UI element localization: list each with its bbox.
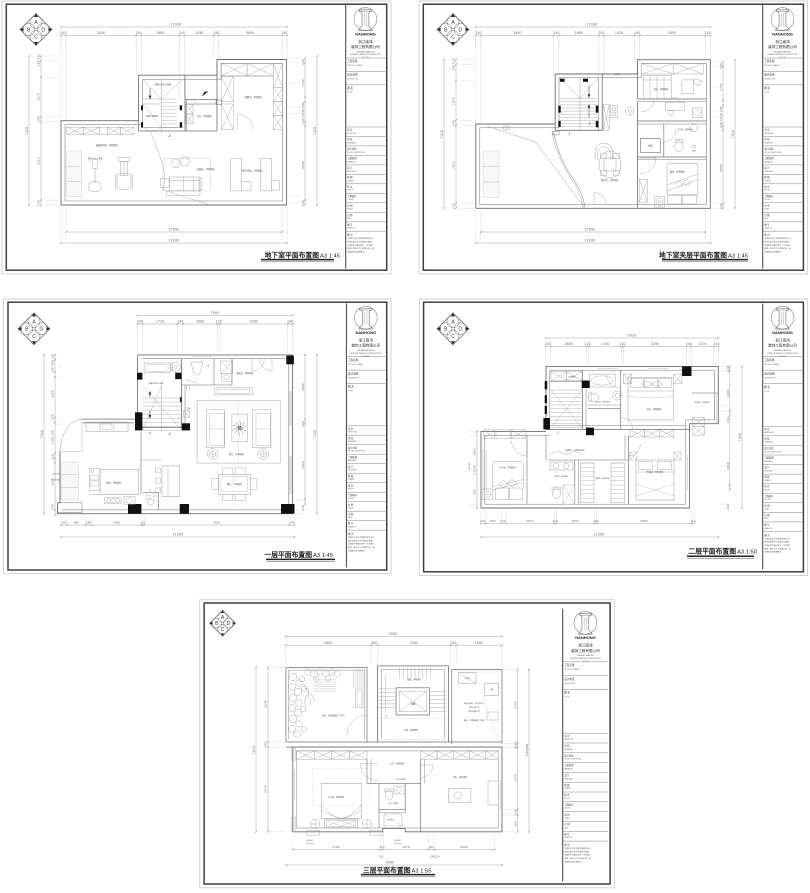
svg-text:240: 240 xyxy=(51,414,55,420)
svg-text:女儿房，特种地区: 女儿房，特种地区 xyxy=(499,466,516,470)
svg-text:240: 240 xyxy=(726,504,730,510)
svg-text:SCALE: SCALE xyxy=(348,507,354,510)
svg-text:露台可调节，洗手间可以: 露台可调节，洗手间可以 xyxy=(464,701,484,705)
svg-text:DESIGNER: DESIGNER xyxy=(348,470,358,472)
svg-text:工图监理: 工图监理 xyxy=(348,455,358,459)
svg-text:5630: 5630 xyxy=(719,164,723,172)
svg-text:9080: 9080 xyxy=(386,861,395,865)
svg-text:设计电话: 设计电话 xyxy=(347,73,358,77)
svg-text:审 定: 审 定 xyxy=(764,128,770,132)
svg-text:DESIGNER: DESIGNER xyxy=(564,778,574,780)
svg-text:3670: 3670 xyxy=(264,785,268,793)
svg-text:240: 240 xyxy=(429,845,435,849)
svg-text:DATE: DATE xyxy=(348,516,353,519)
svg-text:备 注: 备 注 xyxy=(564,843,570,847)
svg-text:校 对: 校 对 xyxy=(348,483,354,487)
svg-text:下: 下 xyxy=(148,432,151,436)
svg-text:SCALE: SCALE xyxy=(764,508,770,511)
svg-text:B: B xyxy=(27,27,31,33)
svg-text:日 期: 日 期 xyxy=(764,213,770,217)
svg-text:A3 1:50: A3 1:50 xyxy=(737,550,757,556)
svg-text:240: 240 xyxy=(452,120,456,126)
svg-text:日 期: 日 期 xyxy=(764,513,770,517)
svg-text:DRAWN: DRAWN xyxy=(764,179,771,182)
svg-text:2430: 2430 xyxy=(113,521,121,525)
svg-text:工程名称: 工程名称 xyxy=(348,358,359,362)
svg-text:450: 450 xyxy=(264,742,268,748)
svg-text:EXAMINED: EXAMINED xyxy=(348,440,358,443)
svg-text:EXAMINED: EXAMINED xyxy=(764,141,774,144)
svg-text:JOB NO.: JOB NO. xyxy=(764,499,771,501)
svg-text:JOB NO.: JOB NO. xyxy=(347,199,354,201)
svg-text:D: D xyxy=(458,327,462,333)
svg-text:图 名: 图 名 xyxy=(764,86,770,90)
svg-text:PROOF: PROOF xyxy=(348,489,354,491)
svg-text:DRAW NO.: DRAW NO. xyxy=(348,526,357,529)
svg-text:TITLE: TITLE xyxy=(764,92,770,94)
svg-text:240: 240 xyxy=(137,320,143,324)
svg-text:240: 240 xyxy=(136,31,142,35)
svg-text:PROOF: PROOF xyxy=(764,190,770,192)
svg-text:240: 240 xyxy=(686,342,692,346)
svg-text:工图监理: 工图监理 xyxy=(347,156,357,160)
svg-text:DESIGN TEL: DESIGN TEL xyxy=(764,377,775,379)
svg-text:240: 240 xyxy=(719,63,723,69)
svg-text:设计电话: 设计电话 xyxy=(764,371,775,375)
svg-text:过厅，特种地区: 过厅，特种地区 xyxy=(197,114,213,118)
svg-text:240: 240 xyxy=(452,203,456,209)
svg-text:110: 110 xyxy=(690,519,696,523)
svg-text:NANHONG: NANHONG xyxy=(575,635,596,640)
svg-text:浙江南鸿: 浙江南鸿 xyxy=(775,39,790,44)
svg-text:7410: 7410 xyxy=(440,130,444,139)
svg-text:设 计: 设 计 xyxy=(564,773,570,777)
svg-text:DESIGN TEL: DESIGN TEL xyxy=(347,79,358,81)
svg-text:240: 240 xyxy=(475,31,481,35)
svg-text:备 注: 备 注 xyxy=(764,533,770,537)
svg-text:装饰工程有限公司: 装饰工程有限公司 xyxy=(351,343,380,348)
svg-text:客厅，特种地区: 客厅，特种地区 xyxy=(229,452,245,456)
svg-text:PROOF: PROOF xyxy=(347,190,353,192)
svg-text:图 号: 图 号 xyxy=(348,521,354,525)
svg-text:审 核: 审 核 xyxy=(564,744,570,748)
svg-text:D: D xyxy=(458,27,462,33)
svg-text:下: 下 xyxy=(568,132,571,136)
svg-text:比 例: 比 例 xyxy=(348,502,354,506)
svg-text:7410: 7410 xyxy=(25,127,29,136)
svg-text:三层平面布置图: 三层平面布置图 xyxy=(363,865,411,874)
svg-text:工图监理: 工图监理 xyxy=(564,763,574,767)
svg-text:DRAWN: DRAWN xyxy=(564,787,571,790)
svg-text:C: C xyxy=(34,35,38,41)
svg-text:240: 240 xyxy=(213,31,219,35)
svg-text:JOB NO.: JOB NO. xyxy=(348,498,355,500)
svg-text:厨房，特种地区: 厨房，特种地区 xyxy=(106,481,122,485)
svg-text:ZHEJIANG NANHONG: ZHEJIANG NANHONG xyxy=(357,50,375,53)
svg-text:120: 120 xyxy=(379,845,385,849)
svg-text:审 核: 审 核 xyxy=(764,436,770,440)
svg-text:比 例: 比 例 xyxy=(564,812,570,816)
svg-text:AT RHD: AT RHD xyxy=(307,839,314,842)
svg-text:DESIGNER: DESIGNER xyxy=(347,171,357,173)
svg-text:11030: 11030 xyxy=(169,239,180,243)
svg-text:电梯: 电梯 xyxy=(411,702,416,706)
svg-text:11030: 11030 xyxy=(170,23,181,27)
svg-text:可彩光线下打: 可彩光线下打 xyxy=(469,705,480,709)
svg-text:240: 240 xyxy=(179,31,185,35)
svg-text:INTERIOR DESIGN & CONSTRUCTION: INTERIOR DESIGN & CONSTRUCTION xyxy=(350,353,381,355)
svg-text:1880: 1880 xyxy=(156,31,164,35)
svg-text:3150: 3150 xyxy=(410,641,418,645)
svg-text:3910: 3910 xyxy=(37,157,41,165)
svg-text:器械健身区，特种地区: 器械健身区，特种地区 xyxy=(96,143,119,147)
svg-text:7210: 7210 xyxy=(252,746,256,755)
svg-text:楼梯大样见大样图: 楼梯大样见大样图 xyxy=(149,381,164,385)
svg-text:3430: 3430 xyxy=(97,31,105,35)
svg-text:储物间，特种地区: 储物间，特种地区 xyxy=(245,95,263,99)
svg-text:装饰工程有限公司: 装饰工程有限公司 xyxy=(768,343,797,348)
svg-text:240: 240 xyxy=(301,200,305,206)
svg-text:ZHEJIANG NANHONG: ZHEJIANG NANHONG xyxy=(774,349,792,352)
svg-text:地下室夹层平面布置图: 地下室夹层平面布置图 xyxy=(659,250,727,259)
svg-text:主卧，特种地区: 主卧，特种地区 xyxy=(646,407,662,411)
svg-text:备 注: 备 注 xyxy=(764,233,770,237)
svg-text:1970: 1970 xyxy=(402,845,410,849)
svg-text:INTERIOR DESIGN & CONSTRUCTION: INTERIOR DESIGN & CONSTRUCTION xyxy=(350,54,381,56)
svg-text:餐厅，特种地区: 餐厅，特种地区 xyxy=(227,482,243,486)
svg-text:900: 900 xyxy=(74,521,80,525)
svg-text:120: 120 xyxy=(140,521,146,525)
svg-text:洗手台: 洗手台 xyxy=(186,407,191,410)
svg-text:设计总监: 设计总监 xyxy=(348,445,358,449)
svg-text:日 期: 日 期 xyxy=(564,822,570,826)
svg-text:INTERIOR DESIGN & CONSTRUCTION: INTERIOR DESIGN & CONSTRUCTION xyxy=(570,658,601,660)
svg-text:1430: 1430 xyxy=(195,31,203,35)
svg-text:120: 120 xyxy=(593,519,599,523)
svg-text:JOB NO.: JOB NO. xyxy=(764,199,771,201)
svg-text:设 计: 设 计 xyxy=(764,166,770,170)
svg-text:240: 240 xyxy=(705,31,711,35)
svg-text:设备: 设备 xyxy=(490,688,494,691)
svg-text:240: 240 xyxy=(60,31,66,35)
svg-text:浙江南鸿: 浙江南鸿 xyxy=(359,338,374,343)
svg-text:DRAWN: DRAWN xyxy=(764,479,771,482)
svg-text:DRAW NO.: DRAW NO. xyxy=(347,227,356,230)
svg-text:C: C xyxy=(451,334,455,340)
svg-text:DESIGNER: DESIGNER xyxy=(764,171,774,173)
svg-text:240: 240 xyxy=(37,200,41,206)
svg-text:图 名: 图 名 xyxy=(564,691,570,695)
svg-text:装饰工程有限公司: 装饰工程有限公司 xyxy=(351,44,380,49)
svg-text:NANHONG: NANHONG xyxy=(355,31,376,36)
svg-text:装饰工程有限公司: 装饰工程有限公司 xyxy=(768,44,797,49)
svg-text:淋浴房: 淋浴房 xyxy=(464,677,469,680)
svg-text:E2 C19400: E2 C19400 xyxy=(52,479,61,481)
svg-text:JOB NO.: JOB NO. xyxy=(564,808,571,810)
svg-text:1700: 1700 xyxy=(601,342,609,346)
svg-text:DATE: DATE xyxy=(764,517,769,520)
svg-text:PROJECT NAME: PROJECT NAME xyxy=(764,64,780,67)
svg-text:设计总监: 设计总监 xyxy=(564,753,574,757)
svg-text:AT +(m)d: AT +(m)d xyxy=(395,842,402,845)
svg-text:240 1040 200: 240 1040 200 xyxy=(301,102,305,123)
svg-text:MANAGER: MANAGER xyxy=(764,160,773,163)
svg-text:11290: 11290 xyxy=(173,533,184,537)
svg-text:二层平面布置图: 二层平面布置图 xyxy=(688,547,736,556)
svg-text:SCALE: SCALE xyxy=(764,208,770,211)
svg-text:4980: 4980 xyxy=(640,519,648,523)
svg-text:1460 240: 1460 240 xyxy=(51,430,55,444)
svg-text:120: 120 xyxy=(585,342,591,346)
svg-text:书房，地板铺装: 书房，地板铺装 xyxy=(453,775,468,779)
svg-text:可彩光照明下打: 可彩光照明下打 xyxy=(468,709,481,713)
svg-text:楼梯下储物间: 楼梯下储物间 xyxy=(146,114,158,118)
svg-text:D: D xyxy=(227,621,231,627)
svg-text:NANHONG: NANHONG xyxy=(772,330,793,335)
svg-text:设计总监: 设计总监 xyxy=(347,147,357,151)
svg-text:D: D xyxy=(41,27,45,33)
svg-text:设 计: 设 计 xyxy=(764,465,770,469)
svg-text:DATE: DATE xyxy=(764,217,769,220)
svg-text:7440: 7440 xyxy=(738,433,742,442)
svg-text:EXAMINED: EXAMINED xyxy=(564,748,574,751)
svg-text:APPROVED: APPROVED xyxy=(347,132,357,135)
svg-text:图 名: 图 名 xyxy=(348,385,354,389)
svg-text:C: C xyxy=(221,627,225,633)
svg-text:830: 830 xyxy=(490,519,496,523)
svg-text:1980: 1980 xyxy=(475,641,483,645)
svg-text:PROJECT APPROVED: PROJECT APPROVED xyxy=(764,450,782,453)
svg-text:比 例: 比 例 xyxy=(764,203,770,207)
svg-text:上: 上 xyxy=(588,120,591,125)
svg-text:APPROVED: APPROVED xyxy=(764,431,774,434)
svg-text:240: 240 xyxy=(545,342,551,346)
svg-text:DATE: DATE xyxy=(347,217,352,220)
svg-text:图 号: 图 号 xyxy=(764,523,770,527)
svg-text:560: 560 xyxy=(514,821,518,827)
svg-text:11030: 11030 xyxy=(586,23,597,27)
svg-text:INTERIOR DESIGN & CONSTRUCTION: INTERIOR DESIGN & CONSTRUCTION xyxy=(767,353,798,355)
svg-text:3910: 3910 xyxy=(452,161,456,169)
svg-text:ZHEJIANG NANHONG: ZHEJIANG NANHONG xyxy=(774,50,792,53)
svg-text:280: 280 xyxy=(86,521,92,525)
svg-text:240 810: 240 810 xyxy=(452,58,456,71)
svg-text:DESIGN TEL: DESIGN TEL xyxy=(348,377,359,379)
svg-text:下: 下 xyxy=(385,716,388,719)
svg-text:AT RHD: AT RHD xyxy=(395,839,402,842)
svg-text:E1 93700: E1 93700 xyxy=(53,474,60,476)
svg-text:C: C xyxy=(451,35,455,41)
svg-text:工图监理: 工图监理 xyxy=(764,156,774,160)
svg-text:DRAW NO.: DRAW NO. xyxy=(764,527,773,530)
svg-text:2510: 2510 xyxy=(526,519,534,523)
svg-text:工图监理: 工图监理 xyxy=(764,456,774,460)
svg-text:3090: 3090 xyxy=(246,31,254,35)
svg-text:240 810: 240 810 xyxy=(37,54,41,67)
svg-text:工程编号: 工程编号 xyxy=(564,802,574,806)
svg-text:3680: 3680 xyxy=(324,641,332,645)
svg-text:240: 240 xyxy=(51,504,55,510)
svg-text:A3 1:45: A3 1:45 xyxy=(320,253,340,259)
svg-text:1720: 1720 xyxy=(719,83,723,91)
svg-text:2090: 2090 xyxy=(726,389,730,397)
svg-text:3190: 3190 xyxy=(514,701,518,709)
svg-text:1720: 1720 xyxy=(301,79,305,87)
svg-text:暖房，特种地区: 暖房，特种地区 xyxy=(670,169,686,173)
svg-text:2600: 2600 xyxy=(460,845,468,849)
svg-text:B 衣帽间: B 衣帽间 xyxy=(568,375,575,379)
svg-text:日 期: 日 期 xyxy=(348,512,354,516)
svg-text:A: A xyxy=(34,20,38,26)
svg-text:A: A xyxy=(451,20,455,26)
svg-text:图 号: 图 号 xyxy=(764,222,770,226)
svg-text:休闲区，特种地区: 休闲区，特种地区 xyxy=(197,167,215,171)
svg-text:1990: 1990 xyxy=(571,519,579,523)
svg-text:浙江南鸿: 浙江南鸿 xyxy=(358,39,373,44)
svg-text:240: 240 xyxy=(473,489,477,495)
svg-text:240: 240 xyxy=(289,521,295,525)
svg-text:10550: 10550 xyxy=(584,228,595,232)
svg-text:地下室平面布置图: 地下室平面布置图 xyxy=(265,250,320,259)
svg-text:A3 1:45: A3 1:45 xyxy=(313,553,333,559)
svg-text:设 计: 设 计 xyxy=(347,166,353,170)
svg-text:300: 300 xyxy=(61,521,67,525)
svg-text:PROJECT APPROVED: PROJECT APPROVED xyxy=(347,151,365,154)
svg-text:卫: 卫 xyxy=(149,489,151,492)
svg-text:1710: 1710 xyxy=(156,320,164,324)
svg-text:B: B xyxy=(25,327,29,333)
svg-text:TITLE: TITLE xyxy=(347,92,353,94)
svg-text:3290: 3290 xyxy=(651,342,659,346)
svg-text:240: 240 xyxy=(287,320,293,324)
svg-text:B: B xyxy=(444,327,448,333)
svg-text:设计电话: 设计电话 xyxy=(764,73,775,77)
svg-text:7020: 7020 xyxy=(213,521,221,525)
svg-text:120: 120 xyxy=(552,519,558,523)
svg-text:300: 300 xyxy=(371,641,377,645)
svg-text:240: 240 xyxy=(450,641,456,645)
svg-text:制 图: 制 图 xyxy=(347,175,353,179)
svg-text:MANAGER: MANAGER xyxy=(764,460,773,463)
svg-text:PROJECT NAME: PROJECT NAME xyxy=(348,363,364,366)
svg-text:工程名称: 工程名称 xyxy=(764,59,775,63)
svg-text:7410: 7410 xyxy=(731,130,735,139)
svg-text:本图纸之设计方案的版权归本公: 本图纸之设计方案的版权归本公 xyxy=(764,536,791,540)
svg-text:一层平面布置图: 一层平面布置图 xyxy=(264,550,312,559)
svg-text:玄关，地砖铺装: 玄关，地砖铺装 xyxy=(390,762,404,766)
svg-text:图 号: 图 号 xyxy=(564,832,570,836)
svg-text:EXAMINED: EXAMINED xyxy=(347,141,357,144)
svg-text:PROJECT NAME: PROJECT NAME xyxy=(764,363,780,366)
svg-text:露台，木塑板铺装（特定）: 露台，木塑板铺装（特定） xyxy=(322,714,346,718)
svg-text:PROOF: PROOF xyxy=(764,490,770,492)
svg-text:1860: 1860 xyxy=(473,448,477,456)
svg-text:制 图: 制 图 xyxy=(764,475,770,479)
svg-text:9010: 9010 xyxy=(627,334,636,338)
svg-text:MANAGER: MANAGER xyxy=(347,160,356,163)
svg-text:1970: 1970 xyxy=(37,93,41,101)
svg-text:240 1040 200: 240 1040 200 xyxy=(719,106,723,127)
svg-text:DATE: DATE xyxy=(564,826,569,829)
svg-text:(830): (830) xyxy=(514,741,518,749)
svg-text:浙江南鸿: 浙江南鸿 xyxy=(578,643,593,648)
svg-text:B: B xyxy=(444,27,448,33)
svg-text:DRAWN: DRAWN xyxy=(347,179,354,182)
svg-text:A3 1:45: A3 1:45 xyxy=(728,253,748,259)
svg-text:备 注: 备 注 xyxy=(347,233,353,237)
svg-text:日 期: 日 期 xyxy=(347,213,353,217)
svg-text:工程名称: 工程名称 xyxy=(564,663,575,667)
svg-text:NANHONG: NANHONG xyxy=(355,330,376,335)
svg-text:TITLE: TITLE xyxy=(348,391,354,393)
svg-text:校 对: 校 对 xyxy=(764,184,770,188)
svg-text:1880: 1880 xyxy=(564,342,572,346)
svg-text:工程编号: 工程编号 xyxy=(347,194,357,198)
svg-text:审 定: 审 定 xyxy=(347,128,353,132)
svg-text:书房，特种地区: 书房，特种地区 xyxy=(653,87,669,91)
svg-text:3430: 3430 xyxy=(513,31,521,35)
svg-text:240 580 240: 240 580 240 xyxy=(51,353,55,372)
svg-text:1880: 1880 xyxy=(575,31,583,35)
svg-text:审 核: 审 核 xyxy=(347,137,353,141)
svg-text:DRAWN: DRAWN xyxy=(348,478,355,481)
svg-text:240: 240 xyxy=(37,116,41,122)
svg-text:上: 上 xyxy=(168,432,171,436)
svg-text:PROJECT NAME: PROJECT NAME xyxy=(347,64,363,67)
svg-text:图 号: 图 号 xyxy=(347,222,353,226)
svg-text:A: A xyxy=(32,320,36,326)
svg-text:PROJECT APPROVED: PROJECT APPROVED xyxy=(764,151,782,154)
svg-text:酒窖: 酒窖 xyxy=(648,144,653,148)
svg-text:工程名称: 工程名称 xyxy=(347,59,358,63)
svg-text:E1 7440: E1 7440 xyxy=(469,463,471,469)
svg-text:DRAW NO.: DRAW NO. xyxy=(564,836,573,839)
svg-text:设计电话: 设计电话 xyxy=(348,371,359,375)
svg-text:浙江南鸿: 浙江南鸿 xyxy=(775,338,790,343)
svg-text:3280: 3280 xyxy=(250,320,258,324)
svg-text:APPROVED: APPROVED xyxy=(348,431,358,434)
svg-text:240: 240 xyxy=(553,31,559,35)
svg-text:7410: 7410 xyxy=(313,127,317,136)
svg-text:7410: 7410 xyxy=(313,430,317,439)
svg-text:TITLE: TITLE xyxy=(764,391,770,393)
svg-text:上: 上 xyxy=(168,133,171,138)
svg-text:PROJECT NAME: PROJECT NAME xyxy=(564,668,580,671)
svg-text:C: C xyxy=(32,334,36,340)
svg-text:TITLE: TITLE xyxy=(564,697,570,699)
svg-text:INTERIOR DESIGN & CONSTRUCTION: INTERIOR DESIGN & CONSTRUCTION xyxy=(767,54,798,56)
svg-text:240: 240 xyxy=(634,31,640,35)
svg-text:240: 240 xyxy=(281,31,287,35)
svg-text:9350: 9350 xyxy=(389,632,398,636)
svg-text:NANHONG: NANHONG xyxy=(772,31,793,36)
svg-text:餐厅区，特种地区: 餐厅区，特种地区 xyxy=(601,178,619,182)
svg-text:楼梯大样见大样图: 楼梯大样见大样图 xyxy=(155,83,171,87)
svg-text:工程编号: 工程编号 xyxy=(764,494,774,498)
svg-text:下: 下 xyxy=(557,432,560,435)
svg-text:SCALE: SCALE xyxy=(347,208,353,211)
svg-text:APPROVED: APPROVED xyxy=(564,738,574,741)
svg-text:AT +(m)d: AT +(m)d xyxy=(307,842,314,845)
svg-text:ZHEJIANG NANHONG: ZHEJIANG NANHONG xyxy=(577,654,595,657)
svg-text:1200: 1200 xyxy=(698,342,706,346)
svg-text:11030: 11030 xyxy=(585,239,596,243)
svg-text:1950: 1950 xyxy=(51,390,55,398)
svg-text:240: 240 xyxy=(514,809,518,815)
svg-text:PROOF: PROOF xyxy=(564,798,570,800)
svg-text:主卫，特种装: 主卫，特种装 xyxy=(388,802,398,805)
svg-text:淋浴: 淋浴 xyxy=(693,150,696,153)
